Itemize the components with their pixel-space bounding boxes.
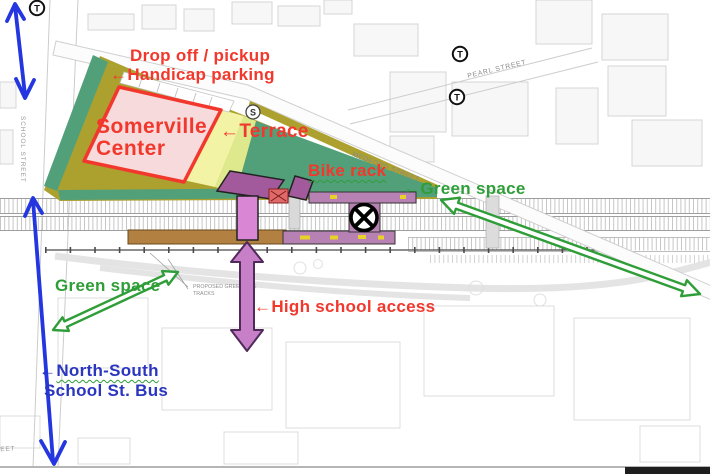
t-logo-icon: T: [450, 90, 464, 104]
plan-corner-dark-strip: [625, 467, 710, 474]
school-street-edge-east: [58, 0, 78, 468]
high-school-access-arrow: [231, 242, 263, 351]
site-plan-map: T T T S PEARL STREET MEDFORD STREET SCHO…: [0, 0, 710, 474]
platform-brown: [128, 230, 286, 244]
site-plan-svg: T T T S PEARL STREET MEDFORD STREET SCHO…: [0, 0, 710, 474]
svg-text:T: T: [457, 49, 463, 60]
elevator-shaft: [237, 196, 258, 240]
svg-text:T: T: [454, 92, 460, 103]
t-logo-icon: T: [453, 47, 467, 61]
partial-street-label: STREET: [0, 445, 16, 454]
school-street-label: SCHOOL STREET: [19, 116, 26, 183]
svg-text:S: S: [250, 108, 256, 118]
green-space-arrow-west: [53, 271, 178, 331]
svg-text:TRACKS: TRACKS: [193, 291, 215, 297]
platform-north: [309, 192, 416, 203]
t-logo-icon: T: [30, 1, 44, 15]
pearl-street-label: PEARL STREET: [467, 59, 527, 80]
stair-box: [269, 189, 288, 203]
background-buildings-south: [0, 298, 700, 464]
station-circle-x-icon: [351, 205, 377, 231]
svg-text:T: T: [34, 3, 40, 14]
overpass-band: [289, 196, 300, 229]
s-marker-icon: S: [246, 105, 260, 119]
